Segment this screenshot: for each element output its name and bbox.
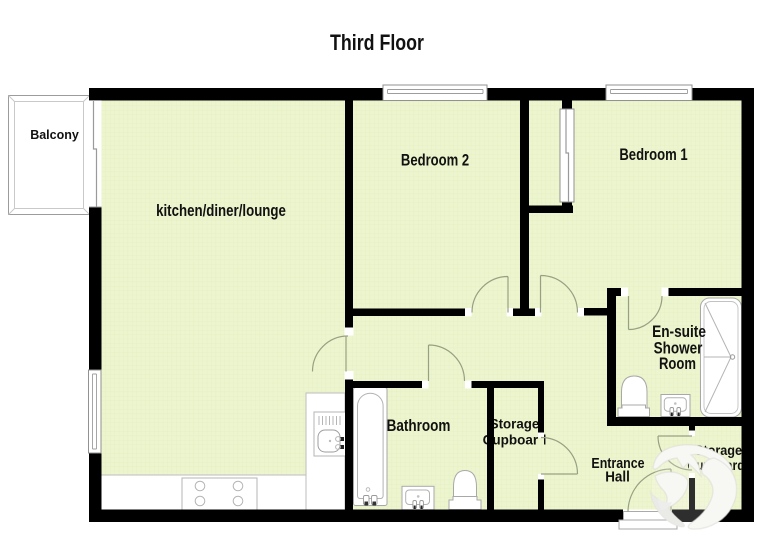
svg-text:Bathroom: Bathroom [387, 417, 451, 436]
svg-text:Bedroom 2: Bedroom 2 [401, 152, 469, 170]
svg-text:Balcony: Balcony [30, 128, 79, 142]
svg-text:Hall: Hall [605, 469, 630, 486]
svg-text:Third Floor: Third Floor [330, 31, 424, 55]
svg-text:Storage: Storage [490, 416, 540, 431]
svg-text:Bedroom 1: Bedroom 1 [619, 147, 687, 165]
svg-text:Room: Room [659, 356, 696, 374]
svg-text:kitchen/diner/lounge: kitchen/diner/lounge [156, 202, 286, 221]
